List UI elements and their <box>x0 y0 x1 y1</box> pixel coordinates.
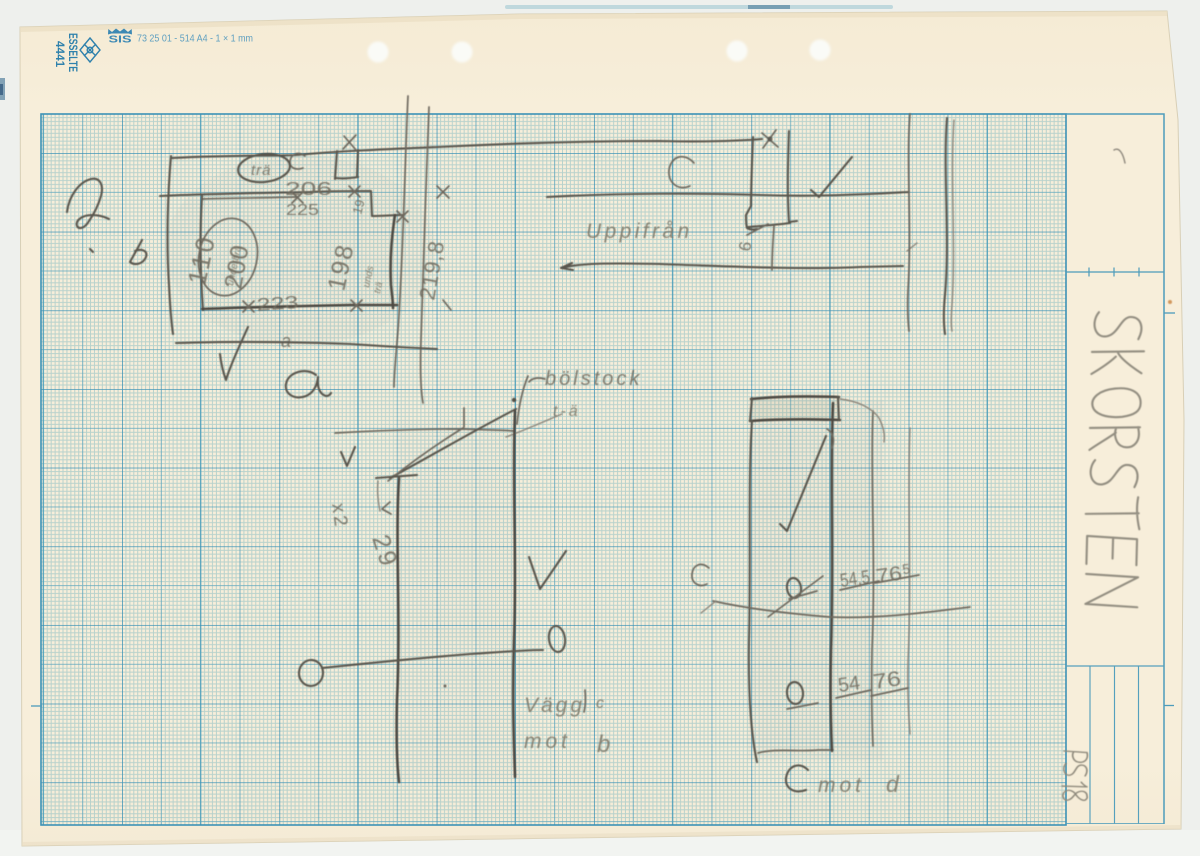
svg-text:mot: mot <box>524 730 571 753</box>
svg-text:t-ä: t-ä <box>553 403 581 420</box>
svg-text:225: 225 <box>286 202 319 219</box>
svg-text:Uppifrån: Uppifrån <box>586 220 693 243</box>
svg-text:ESSELTE: ESSELTE <box>66 33 80 72</box>
svg-text:c: c <box>596 695 604 712</box>
svg-text:223: 223 <box>256 292 299 315</box>
svg-text:a: a <box>281 331 291 351</box>
svg-text:Vägg: Vägg <box>524 694 585 717</box>
svg-text:mot: mot <box>818 774 865 797</box>
svg-text:b: b <box>597 731 610 758</box>
svg-text:4441: 4441 <box>53 41 65 68</box>
svg-text:bölstock: bölstock <box>545 368 642 390</box>
svg-text:trä: trä <box>251 162 272 179</box>
svg-text:54,5: 54,5 <box>839 567 872 592</box>
svg-text:d: d <box>886 771 900 797</box>
svg-text:206: 206 <box>285 179 332 199</box>
svg-text:76: 76 <box>875 563 904 588</box>
svg-text:73 25 01 - 514 A4 - 1 × 1 mm: 73 25 01 - 514 A4 - 1 × 1 mm <box>137 34 253 45</box>
svg-text:SIS: SIS <box>109 35 132 46</box>
svg-text:x2: x2 <box>327 502 351 531</box>
